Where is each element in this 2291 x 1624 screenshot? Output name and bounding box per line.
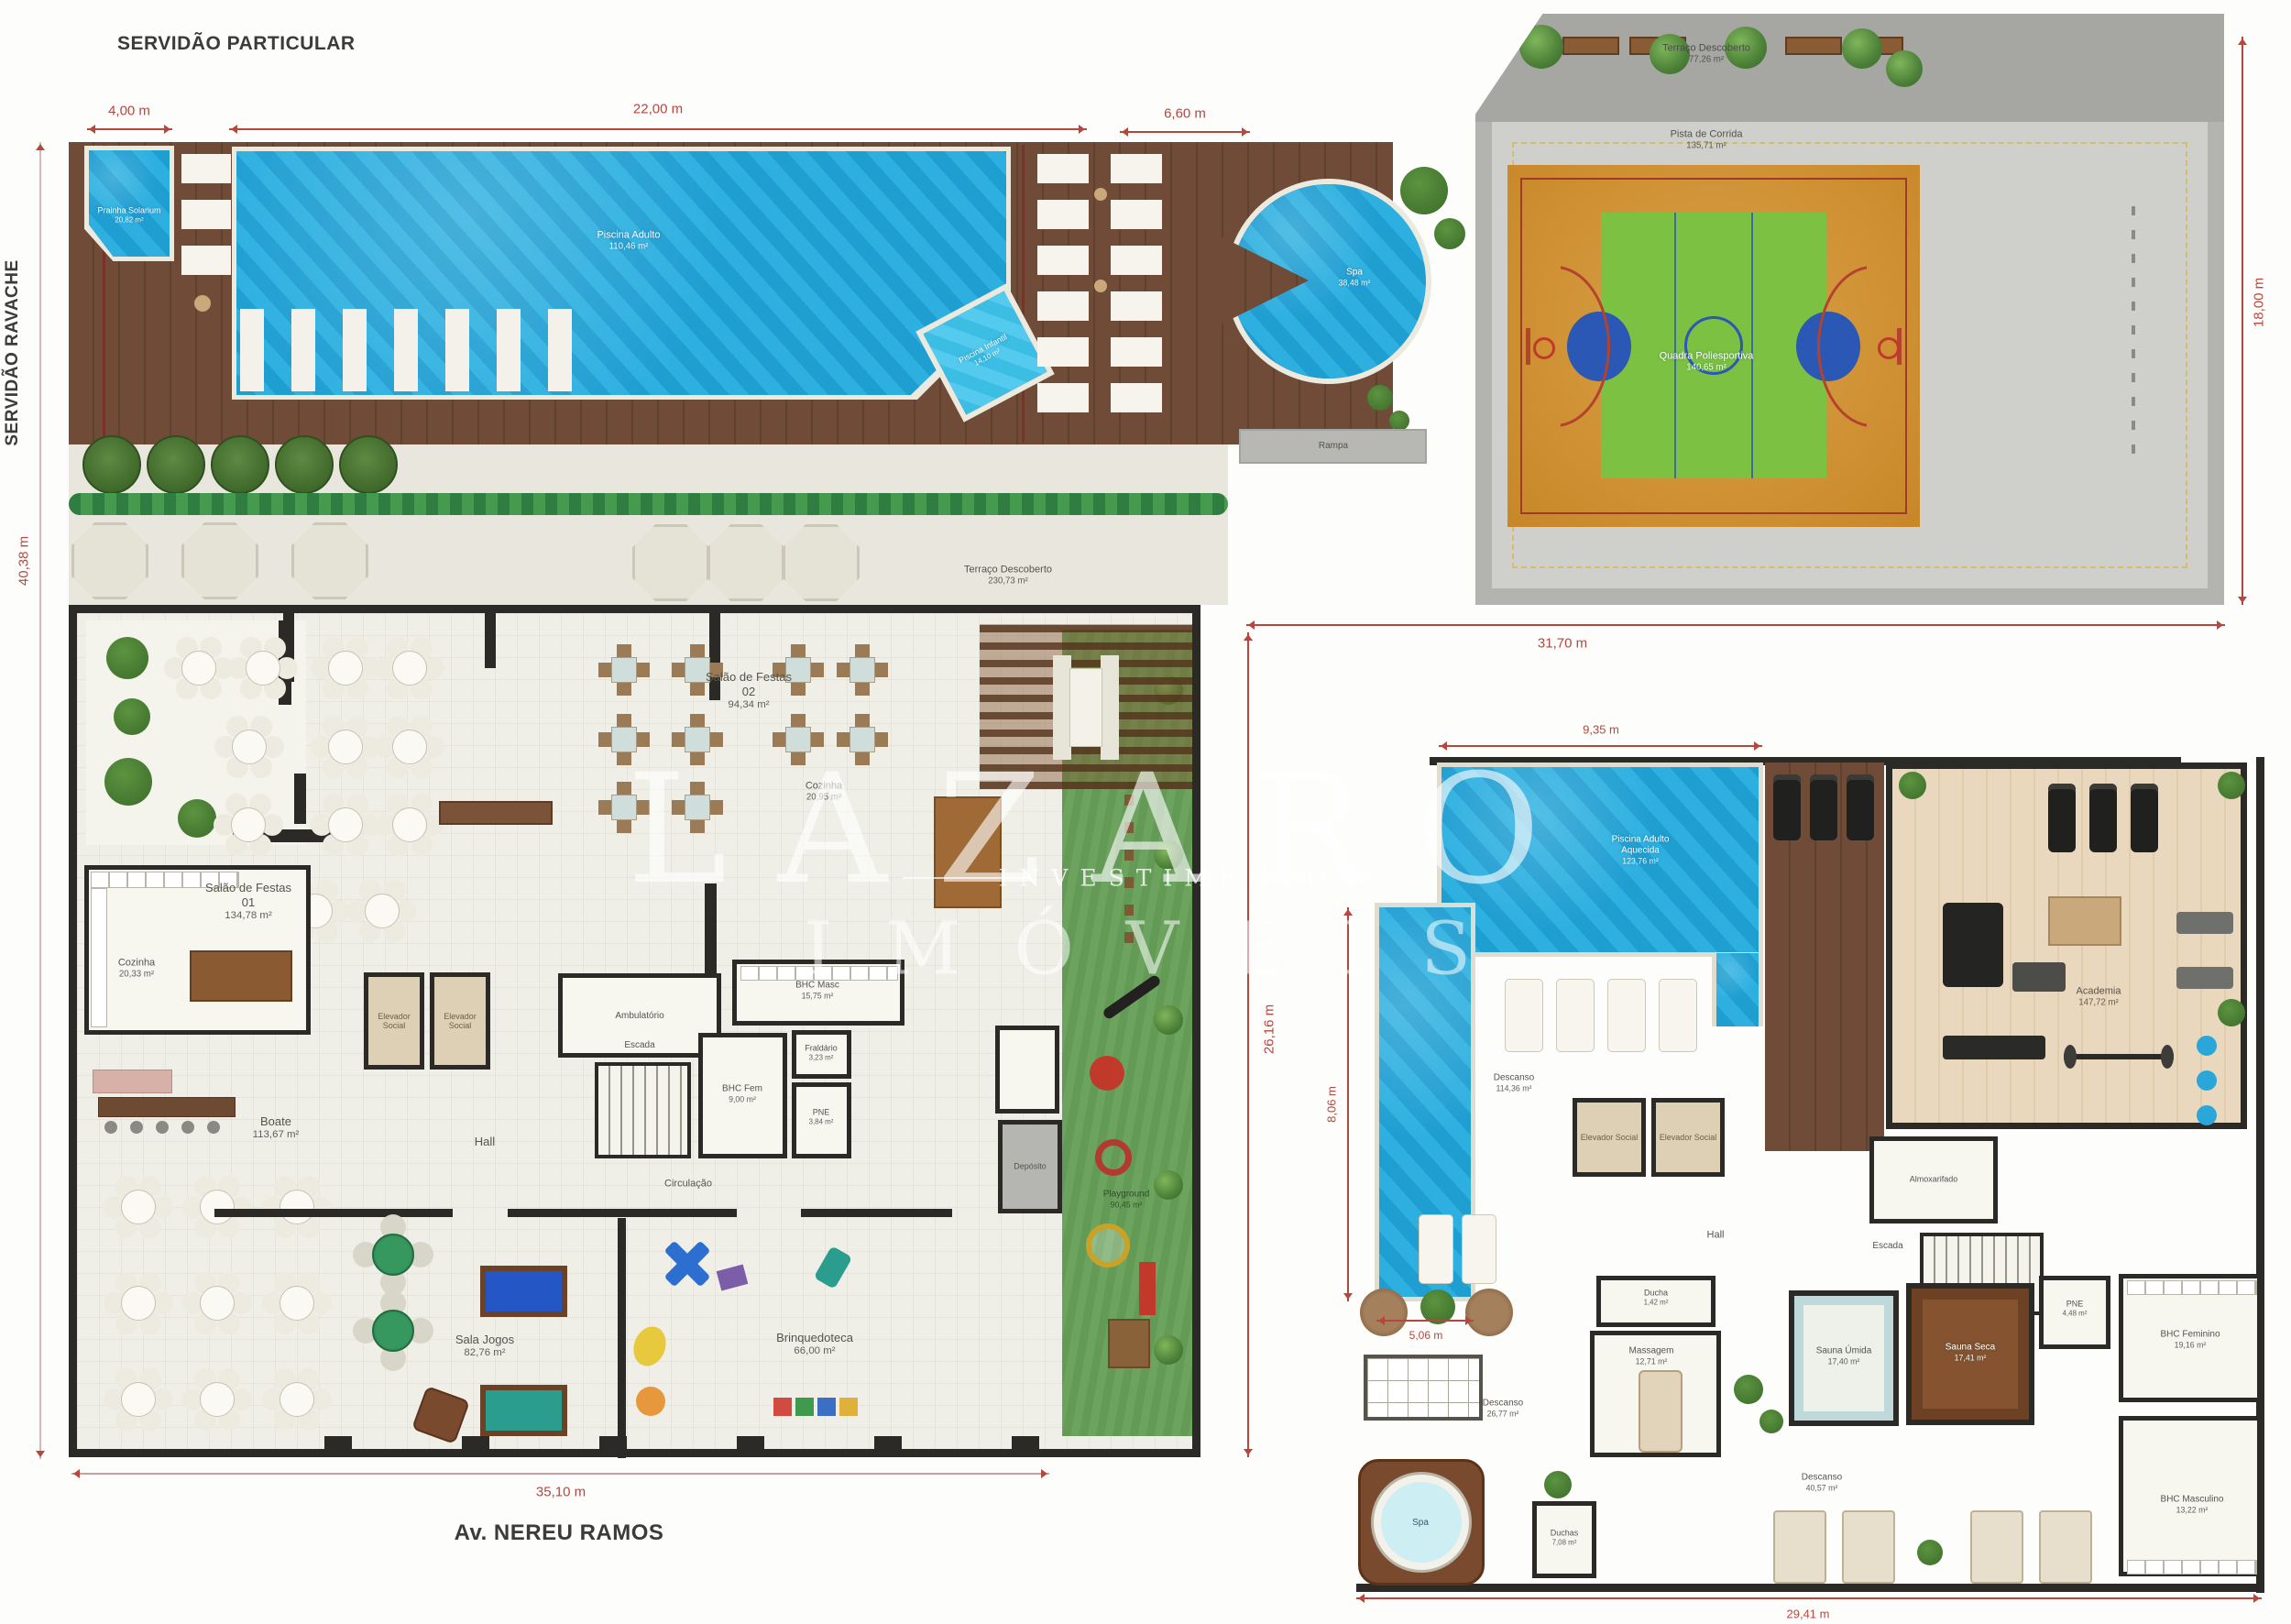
basketball-hoop-icon xyxy=(1878,337,1900,359)
toy-blue-cross xyxy=(662,1238,713,1289)
descanso3-label: Descanso 40,57 m² xyxy=(1802,1473,1842,1494)
piscina-aquecida-area: 123,76 m² xyxy=(1595,857,1686,867)
dim-label-9-35m: 9,35 m xyxy=(1583,723,1619,737)
court-terrace-band xyxy=(1475,14,2224,122)
bhc-fem-area: 19,16 m² xyxy=(2160,1341,2220,1351)
round-table xyxy=(232,730,267,764)
gym-machine xyxy=(2176,967,2233,989)
plant xyxy=(1917,1540,1943,1565)
court-terraco-label: Terraço Descoberto 77,26 m² xyxy=(1662,42,1750,65)
sauna-seca-area: 17,41 m² xyxy=(1946,1354,1996,1364)
toy-easel xyxy=(717,1264,749,1290)
dim-line-22m xyxy=(229,128,1087,130)
plant xyxy=(2218,772,2245,799)
plant xyxy=(1400,167,1448,214)
tree xyxy=(1154,1005,1183,1035)
brinquedoteca-area: 66,00 m² xyxy=(776,1345,853,1358)
sauna-umida-area: 17,40 m² xyxy=(1816,1357,1872,1367)
sala-jogos-name: Sala Jogos xyxy=(455,1333,514,1347)
playground-label: Playground 90,45 m² xyxy=(1080,1190,1172,1211)
pista-area: 135,71 m² xyxy=(1671,141,1743,152)
court-terraco-name: Terraço Descoberto xyxy=(1662,42,1750,54)
elevator: Elevador Social xyxy=(364,972,424,1070)
pool-sun-shelf-loungers xyxy=(240,309,577,391)
weight-plate xyxy=(2161,1045,2174,1069)
square-table xyxy=(685,795,710,820)
quadra-area: 140,65 m² xyxy=(1660,363,1754,374)
kitchen-counter xyxy=(91,888,107,1027)
spa-tub-label: Spa xyxy=(1412,1518,1429,1529)
descanso2-area: 26,77 m² xyxy=(1483,1410,1523,1420)
terraco-descoberto-name: Terraço Descoberto xyxy=(964,564,1052,576)
square-table xyxy=(611,727,637,752)
toy-block xyxy=(773,1398,792,1416)
cozinha1-label: Cozinha 20,33 m² xyxy=(118,957,155,980)
plant xyxy=(178,799,216,838)
elevator: Elevador Social xyxy=(1651,1098,1725,1177)
pool-equipment xyxy=(2197,1036,2217,1056)
round-table xyxy=(392,651,427,686)
terraco-descoberto-area: 230,73 m² xyxy=(964,576,1052,587)
court-line xyxy=(1751,213,1753,478)
piscina-adulto-label: Piscina Adulto 110,46 m² xyxy=(597,229,660,252)
watermark-rule xyxy=(903,877,1031,879)
elevator-label: Elevador Social xyxy=(1581,1133,1639,1142)
descanso2-label: Descanso 26,77 m² xyxy=(1483,1399,1523,1420)
toy-slide xyxy=(814,1245,853,1289)
round-table xyxy=(280,1190,314,1224)
toy-ball xyxy=(636,1387,665,1416)
playground-name: Playground xyxy=(1080,1190,1172,1201)
lounger xyxy=(1607,979,1646,1052)
dim-label-29-41m: 29,41 m xyxy=(1787,1608,1830,1621)
tree xyxy=(1154,1335,1183,1365)
gym-bench xyxy=(2012,962,2066,992)
sauna-seca-label: Sauna Seca 17,41 m² xyxy=(1946,1343,1996,1364)
dim-label-5-06m: 5,06 m xyxy=(1409,1329,1443,1342)
stool xyxy=(181,1121,194,1134)
square-table xyxy=(611,795,637,820)
tree xyxy=(1154,840,1183,870)
lounger xyxy=(1462,1214,1496,1284)
brinquedoteca-label: Brinquedoteca 66,00 m² xyxy=(776,1331,853,1358)
spa-pool-area: 38,48 m² xyxy=(1339,279,1371,289)
street-left-label: SERVIDÃO RAVACHE xyxy=(3,259,23,445)
pne-area: 3,84 m² xyxy=(809,1118,834,1127)
column xyxy=(737,1436,764,1449)
weight-plate xyxy=(2064,1045,2077,1069)
plant xyxy=(1544,1471,1572,1498)
service-room xyxy=(995,1026,1059,1114)
wall xyxy=(283,613,294,682)
backboard xyxy=(1526,328,1530,365)
column xyxy=(874,1436,902,1449)
plant xyxy=(1434,218,1465,249)
cozinha2-label: Cozinha 20,95 m² xyxy=(806,780,842,803)
bhc-fem-name: BHC Fem xyxy=(722,1084,762,1095)
prainha-area: 20,82 m² xyxy=(93,216,166,225)
lounger xyxy=(1810,774,1837,840)
deck-loungers xyxy=(181,154,231,290)
wall xyxy=(1356,1584,2264,1592)
hall-label: Hall xyxy=(475,1135,495,1149)
dim-label-31-70m: 31,70 m xyxy=(1538,636,1587,652)
lounger xyxy=(1847,774,1874,840)
seesaw xyxy=(1102,973,1162,1020)
counter xyxy=(93,1070,172,1093)
sala-jogos-label: Sala Jogos 82,76 m² xyxy=(455,1333,514,1360)
wall xyxy=(618,1218,626,1458)
bhc-masc-name: BHC Masculino xyxy=(2161,1495,2224,1506)
plant xyxy=(1367,385,1393,411)
pool-equipment xyxy=(2197,1105,2217,1125)
salao2-label: Salão de Festas 02 94,34 m² xyxy=(697,670,800,712)
plant xyxy=(1734,1375,1763,1404)
kitchen-island xyxy=(190,950,292,1002)
dining-table xyxy=(1069,668,1102,747)
fraldario-name: Fraldário xyxy=(805,1044,838,1054)
buffet-counter xyxy=(439,801,553,825)
dim-label-40-38m: 40,38 m xyxy=(16,536,32,586)
pergola xyxy=(980,624,1192,789)
plant xyxy=(1759,1410,1783,1433)
play-equipment xyxy=(1090,1056,1124,1091)
dim-line-35-10m xyxy=(71,1473,1049,1475)
ambulatorio-label: Ambulatório xyxy=(615,1011,663,1022)
academia-label: Academia 147,72 m² xyxy=(2077,985,2121,1008)
pool-table xyxy=(480,1385,567,1436)
rampa-label: Rampa xyxy=(1319,441,1348,452)
lounger xyxy=(1773,1510,1826,1584)
garden-umbrella xyxy=(147,435,205,494)
plant xyxy=(114,698,150,735)
bhc-masc-label: BHC Masc 15,75 m² xyxy=(795,981,839,1002)
bhc-fem-label: BHC Fem 9,00 m² xyxy=(722,1084,762,1105)
bhc-fem-name: BHC Feminino xyxy=(2160,1330,2220,1341)
toilet-fixtures xyxy=(2127,1560,2257,1575)
sideboard xyxy=(934,796,1002,908)
round-table xyxy=(121,1190,156,1224)
column xyxy=(1012,1436,1039,1449)
academia-area: 147,72 m² xyxy=(2077,998,2121,1009)
lounger xyxy=(1505,979,1543,1052)
elevator: Elevador Social xyxy=(430,972,490,1070)
duchas-label: Duchas 7,08 m² xyxy=(1551,1529,1579,1548)
treadmill xyxy=(2048,784,2076,852)
side-table xyxy=(1094,280,1107,292)
deck-loungers xyxy=(1111,154,1162,429)
descanso3-area: 40,57 m² xyxy=(1802,1484,1842,1494)
gym-machine xyxy=(2176,912,2233,934)
hedge xyxy=(69,493,1228,515)
stepping-path xyxy=(1124,795,1134,950)
heated-pool-arm xyxy=(1712,953,1763,1026)
toy-egg xyxy=(629,1322,672,1371)
garden-umbrella xyxy=(82,435,141,494)
massage-bed xyxy=(1639,1370,1683,1453)
side-table xyxy=(194,295,211,312)
bar-counter xyxy=(98,1097,236,1117)
square-table xyxy=(850,727,875,752)
dumbbell-rack xyxy=(1943,1036,2045,1059)
dim-line-8-06m xyxy=(1347,907,1349,1301)
pne-name: PNE xyxy=(2063,1300,2088,1310)
toy-block xyxy=(839,1398,858,1416)
round-table xyxy=(280,1382,314,1417)
pool-table xyxy=(480,1266,567,1317)
play-spinner xyxy=(1095,1139,1132,1176)
round-table xyxy=(365,894,400,928)
dim-label-4m: 4,00 m xyxy=(108,104,150,119)
ground-floor-plan: Elevador Social Elevador Social Salão de… xyxy=(69,605,1200,1457)
massagem-name: Massagem xyxy=(1629,1346,1674,1357)
track-marks xyxy=(2132,206,2135,463)
bhc-masc-area: 15,75 m² xyxy=(795,992,839,1002)
round-table xyxy=(328,651,363,686)
sport-court xyxy=(1507,165,1920,527)
spa-pool-label: Spa 38,48 m² xyxy=(1339,268,1371,289)
treadmill xyxy=(2131,784,2158,852)
sala-jogos-area: 82,76 m² xyxy=(455,1347,514,1360)
round-table xyxy=(392,730,427,764)
pne-label: PNE 3,84 m² xyxy=(809,1108,834,1127)
descanso1-area: 114,36 m² xyxy=(1494,1084,1534,1094)
lockers xyxy=(1364,1355,1483,1421)
descanso2-name: Descanso xyxy=(1483,1399,1523,1410)
lounger xyxy=(1970,1510,2023,1584)
sauna-seca-name: Sauna Seca xyxy=(1946,1343,1996,1354)
elevator-label: Elevador Social xyxy=(434,1012,486,1031)
dim-label-22m: 22,00 m xyxy=(633,102,683,117)
round-table xyxy=(200,1286,235,1321)
round-table xyxy=(328,730,363,764)
salao2-name: Salão de Festas 02 xyxy=(697,670,800,699)
dim-line-6-60m xyxy=(1120,131,1250,133)
lounger xyxy=(1659,979,1697,1052)
garden-umbrella xyxy=(211,435,269,494)
toilet-fixtures xyxy=(2127,1280,2257,1295)
square-table xyxy=(685,727,710,752)
stool xyxy=(104,1121,117,1134)
main-pool-water xyxy=(236,151,1006,395)
climbing-frame xyxy=(1108,1319,1150,1368)
street-bottom-label: Av. NEREU RAMOS xyxy=(455,1520,664,1546)
lounger xyxy=(2039,1510,2092,1584)
pne-label: PNE 4,48 m² xyxy=(2063,1300,2088,1319)
bhc-fem-area: 9,00 m² xyxy=(722,1095,762,1105)
piscina-adulto-area: 110,46 m² xyxy=(597,242,660,253)
garden-umbrella xyxy=(339,435,398,494)
tree xyxy=(1886,50,1923,87)
dim-line-26-16m xyxy=(1247,632,1249,1457)
stool xyxy=(130,1121,143,1134)
play-carousel xyxy=(1086,1223,1130,1267)
bhc-masc-label: BHC Masculino 13,22 m² xyxy=(2161,1495,2224,1516)
toy-block xyxy=(817,1398,836,1416)
wall xyxy=(801,1209,952,1217)
plant xyxy=(1899,772,1926,799)
pista-name: Pista de Corrida xyxy=(1671,128,1743,140)
pne-name: PNE xyxy=(809,1108,834,1118)
column xyxy=(324,1436,352,1449)
dim-label-26-16m: 26,16 m xyxy=(1262,1004,1277,1054)
small-pool-border xyxy=(84,146,174,261)
card-table xyxy=(372,1310,414,1352)
sauna-umida-name: Sauna Úmida xyxy=(1816,1346,1872,1357)
round-table xyxy=(181,651,216,686)
lounger xyxy=(1419,1214,1453,1284)
salao2-area: 94,34 m² xyxy=(697,699,800,712)
bench xyxy=(1562,37,1619,55)
staircase xyxy=(595,1062,691,1158)
spa-pool-name: Spa xyxy=(1339,268,1371,279)
dim-label-18m: 18,00 m xyxy=(2252,278,2267,327)
boate-area: 113,67 m² xyxy=(253,1129,300,1142)
hall-label: Hall xyxy=(1707,1229,1725,1241)
side-table xyxy=(1094,188,1107,201)
ducha-name: Ducha xyxy=(1644,1289,1669,1299)
bhc-masc-name: BHC Masc xyxy=(795,981,839,992)
round-table xyxy=(121,1286,156,1321)
escada-label: Escada xyxy=(1872,1241,1902,1252)
lounger xyxy=(1842,1510,1895,1584)
wall xyxy=(294,774,306,824)
tree xyxy=(1842,28,1882,69)
elevator-label: Elevador Social xyxy=(368,1012,420,1031)
salao1-name: Salão de Festas 01 xyxy=(197,881,300,910)
pne-area: 4,48 m² xyxy=(2063,1310,2088,1319)
deck-loungers xyxy=(1037,154,1089,429)
wall xyxy=(508,1209,737,1217)
basketball-hoop-icon xyxy=(1533,337,1555,359)
small-pool-water xyxy=(89,150,170,257)
stool xyxy=(156,1121,169,1134)
deposito-label: Depósito xyxy=(1014,1162,1047,1172)
plant xyxy=(1389,411,1409,431)
duchas-name: Duchas xyxy=(1551,1529,1579,1539)
dim-line-40-38m xyxy=(39,142,41,1459)
boate-name: Boate xyxy=(253,1114,300,1129)
square-table xyxy=(611,657,637,683)
prainha-name: Prainha Solarium xyxy=(93,206,166,216)
volleyball-court xyxy=(1601,213,1826,478)
tree xyxy=(1519,25,1563,69)
round-table xyxy=(280,1286,314,1321)
dim-line-4m xyxy=(87,128,172,130)
quadra-name: Quadra Poliesportiva xyxy=(1660,350,1754,362)
terraco-descoberto-label: Terraço Descoberto 230,73 m² xyxy=(964,564,1052,587)
court-terraco-area: 77,26 m² xyxy=(1662,55,1750,66)
descanso1-label: Descanso 114,36 m² xyxy=(1494,1073,1534,1094)
round-table xyxy=(328,807,363,842)
salao1-area: 134,78 m² xyxy=(197,910,300,923)
square-table xyxy=(850,657,875,683)
wall xyxy=(214,1209,453,1217)
cozinha2-area: 20,95 m² xyxy=(806,793,842,804)
piscina-aquecida-label: Piscina Adulto Aquecida 123,76 m² xyxy=(1595,834,1686,866)
prainha-label: Prainha Solarium 20,82 m² xyxy=(93,206,166,225)
piscina-aquecida-name: Piscina Adulto Aquecida xyxy=(1595,834,1686,856)
boundary-line xyxy=(1022,145,1025,443)
circulacao-label: Circulação xyxy=(664,1178,712,1190)
dim-label-6-60m: 6,60 m xyxy=(1164,106,1206,122)
elevator-label: Elevador Social xyxy=(1660,1133,1717,1142)
salao1-label: Salão de Festas 01 134,78 m² xyxy=(197,881,300,923)
dim-line-31-70m xyxy=(1246,624,2225,626)
brinquedoteca-name: Brinquedoteca xyxy=(776,1331,853,1345)
dim-line-9-35m xyxy=(1439,745,1762,747)
court-line xyxy=(1674,213,1676,478)
almoxarifado-label: Almoxarifado xyxy=(1910,1175,1958,1185)
escada-label: Escada xyxy=(624,1040,654,1051)
cozinha1-name: Cozinha xyxy=(118,957,155,969)
play-tower xyxy=(1139,1262,1156,1315)
pista-label: Pista de Corrida 135,71 m² xyxy=(1671,128,1743,151)
pool-equipment xyxy=(2197,1070,2217,1091)
cable-station xyxy=(1943,903,2003,987)
fraldario-area: 3,23 m² xyxy=(805,1054,838,1063)
square-table xyxy=(785,727,811,752)
treadmill xyxy=(2089,784,2117,852)
street-top-label: SERVIDÃO PARTICULAR xyxy=(117,33,356,55)
dim-line-29-41m xyxy=(1356,1597,2262,1599)
lounger xyxy=(1556,979,1595,1052)
wall xyxy=(485,613,496,668)
dim-line-18m xyxy=(2242,37,2243,605)
card-table xyxy=(372,1234,414,1276)
piscina-adulto-name: Piscina Adulto xyxy=(597,229,660,241)
ducha-area: 1,42 m² xyxy=(1644,1299,1669,1308)
court-plan: Terraço Descoberto 77,26 m² Pista de Cor… xyxy=(1475,14,2224,605)
playground-area: 90,45 m² xyxy=(1080,1201,1172,1211)
fraldario-label: Fraldário 3,23 m² xyxy=(805,1044,838,1063)
round-table xyxy=(121,1382,156,1417)
main-pool-border xyxy=(232,147,1011,400)
plant xyxy=(106,637,148,679)
dim-line-5-06m xyxy=(1376,1320,1474,1322)
round-table xyxy=(200,1190,235,1224)
cozinha2-name: Cozinha xyxy=(806,780,842,792)
bhc-masc-area: 13,22 m² xyxy=(2161,1506,2224,1516)
massagem-area: 12,71 m² xyxy=(1629,1357,1674,1367)
round-table xyxy=(200,1382,235,1417)
duchas-area: 7,08 m² xyxy=(1551,1539,1579,1548)
plant xyxy=(104,758,152,806)
gym-mat xyxy=(2048,896,2121,946)
cozinha1-area: 20,33 m² xyxy=(118,970,155,981)
column xyxy=(462,1436,489,1449)
garden-umbrella xyxy=(275,435,334,494)
dim-label-35-10m: 35,10 m xyxy=(536,1485,586,1500)
descanso3-name: Descanso xyxy=(1802,1473,1842,1484)
leisure-floor-plan: Piscina Adulto Aquecida 123,76 m² Academ… xyxy=(1356,733,2268,1618)
dim-label-8-06m: 8,06 m xyxy=(1325,1086,1339,1123)
descanso1-name: Descanso xyxy=(1494,1073,1534,1084)
bhc-fem-label: BHC Feminino 19,16 m² xyxy=(2160,1330,2220,1351)
stool xyxy=(207,1121,220,1134)
round-table xyxy=(231,807,266,842)
toy-block xyxy=(795,1398,814,1416)
massagem-label: Massagem 12,71 m² xyxy=(1629,1346,1674,1367)
round-table xyxy=(392,807,427,842)
bench xyxy=(1785,37,1842,55)
academia-name: Academia xyxy=(2077,985,2121,997)
sauna-umida-label: Sauna Úmida 17,40 m² xyxy=(1816,1346,1872,1367)
armchair xyxy=(1360,1289,1408,1336)
quadra-label: Quadra Poliesportiva 140,65 m² xyxy=(1660,350,1754,373)
ducha-label: Ducha 1,42 m² xyxy=(1644,1289,1669,1308)
piscina-infantil-label: Piscina Infantil 14,10 m² xyxy=(958,332,1014,373)
